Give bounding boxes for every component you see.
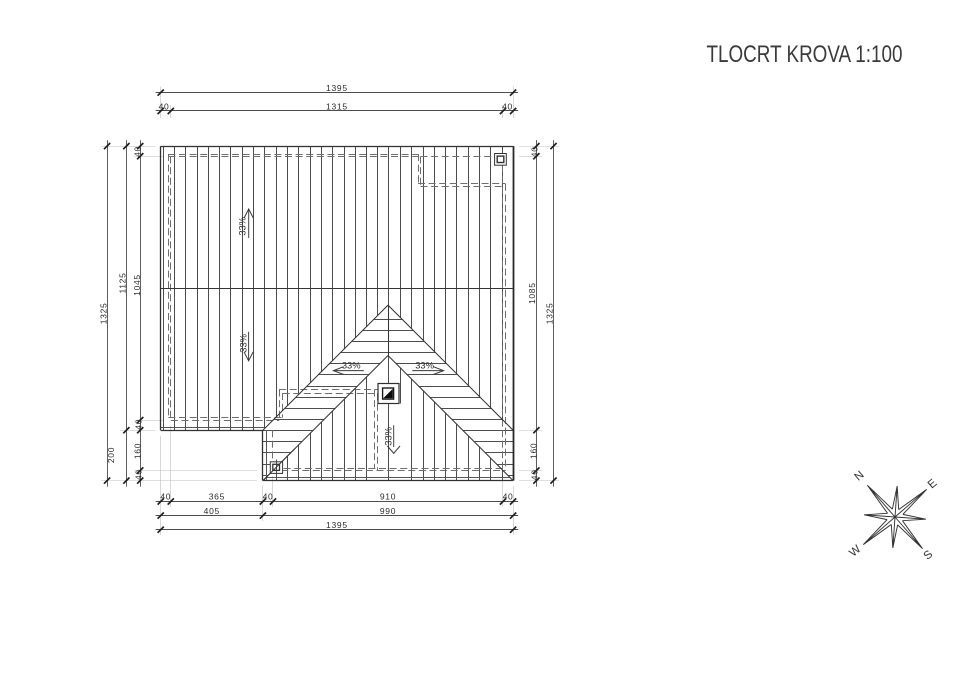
svg-text:365: 365	[209, 492, 225, 502]
svg-text:1045: 1045	[132, 274, 142, 296]
svg-text:33%: 33%	[237, 334, 248, 353]
svg-text:TLOCRT KROVA 1:100: TLOCRT KROVA 1:100	[707, 41, 903, 68]
svg-text:33%: 33%	[342, 359, 361, 370]
svg-text:990: 990	[380, 506, 396, 516]
svg-text:1125: 1125	[118, 272, 128, 293]
svg-text:40: 40	[529, 146, 539, 157]
svg-text:33%: 33%	[383, 427, 394, 446]
svg-text:33%: 33%	[236, 217, 247, 236]
svg-text:40: 40	[502, 102, 513, 112]
svg-text:40: 40	[263, 492, 274, 502]
svg-text:1085: 1085	[527, 282, 537, 304]
svg-text:40: 40	[503, 492, 514, 502]
svg-text:40: 40	[529, 469, 539, 480]
svg-text:40: 40	[133, 419, 143, 430]
svg-text:40: 40	[159, 102, 170, 112]
svg-text:1325: 1325	[98, 303, 108, 325]
svg-text:33%: 33%	[415, 359, 434, 370]
svg-text:1315: 1315	[326, 102, 348, 112]
svg-text:160: 160	[133, 443, 143, 459]
svg-text:405: 405	[204, 506, 220, 516]
svg-text:40: 40	[133, 469, 143, 480]
svg-text:1325: 1325	[545, 303, 555, 325]
svg-text:40: 40	[132, 146, 142, 157]
svg-text:160: 160	[529, 443, 539, 459]
svg-text:200: 200	[106, 447, 116, 463]
svg-text:910: 910	[380, 492, 396, 502]
svg-text:40: 40	[160, 492, 171, 502]
svg-text:1395: 1395	[326, 83, 348, 93]
svg-text:1395: 1395	[326, 520, 348, 530]
